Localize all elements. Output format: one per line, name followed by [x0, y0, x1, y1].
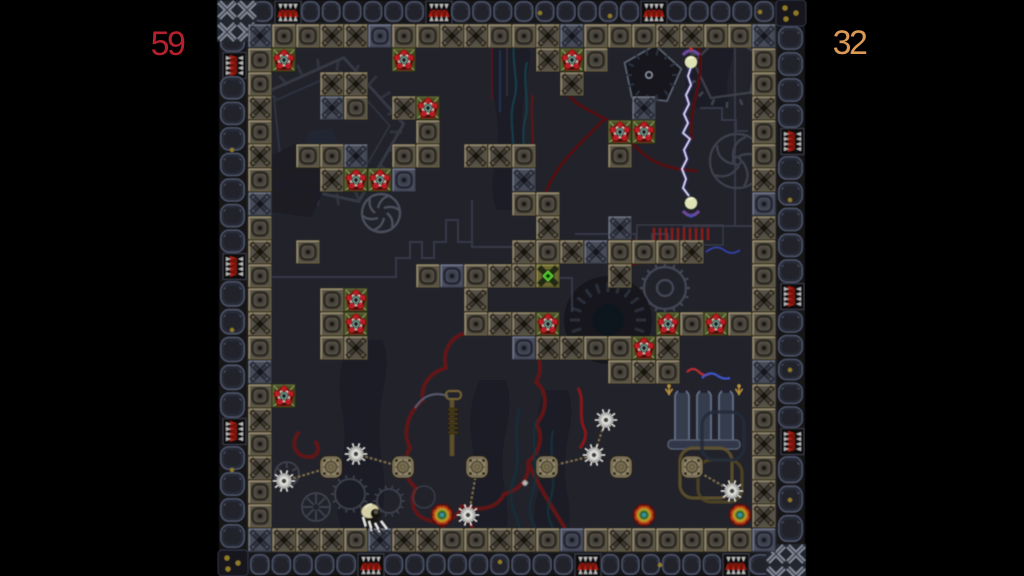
svg-text:59: 59: [151, 25, 185, 63]
svg-text:32: 32: [833, 24, 867, 62]
